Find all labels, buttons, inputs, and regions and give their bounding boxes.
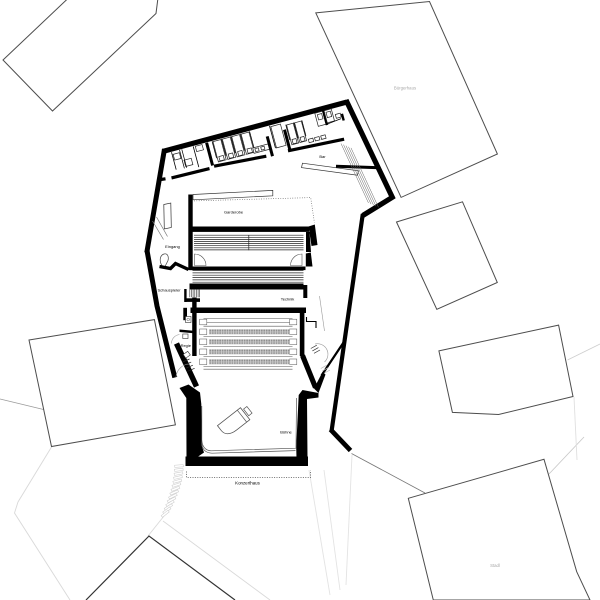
svg-text:Bühne: Bühne — [280, 430, 292, 435]
svg-text:Regie: Regie — [181, 343, 192, 348]
svg-text:Schauspieler: Schauspieler — [157, 288, 181, 293]
svg-text:Eingang: Eingang — [165, 244, 180, 249]
svg-text:Garderobe: Garderobe — [224, 209, 244, 214]
svg-text:Bürgerhaus: Bürgerhaus — [394, 86, 416, 91]
svg-text:Konzerthaus: Konzerthaus — [235, 481, 260, 486]
svg-text:Stadl: Stadl — [490, 563, 500, 568]
svg-text:Technik: Technik — [281, 297, 295, 302]
svg-text:Bar: Bar — [319, 154, 326, 159]
